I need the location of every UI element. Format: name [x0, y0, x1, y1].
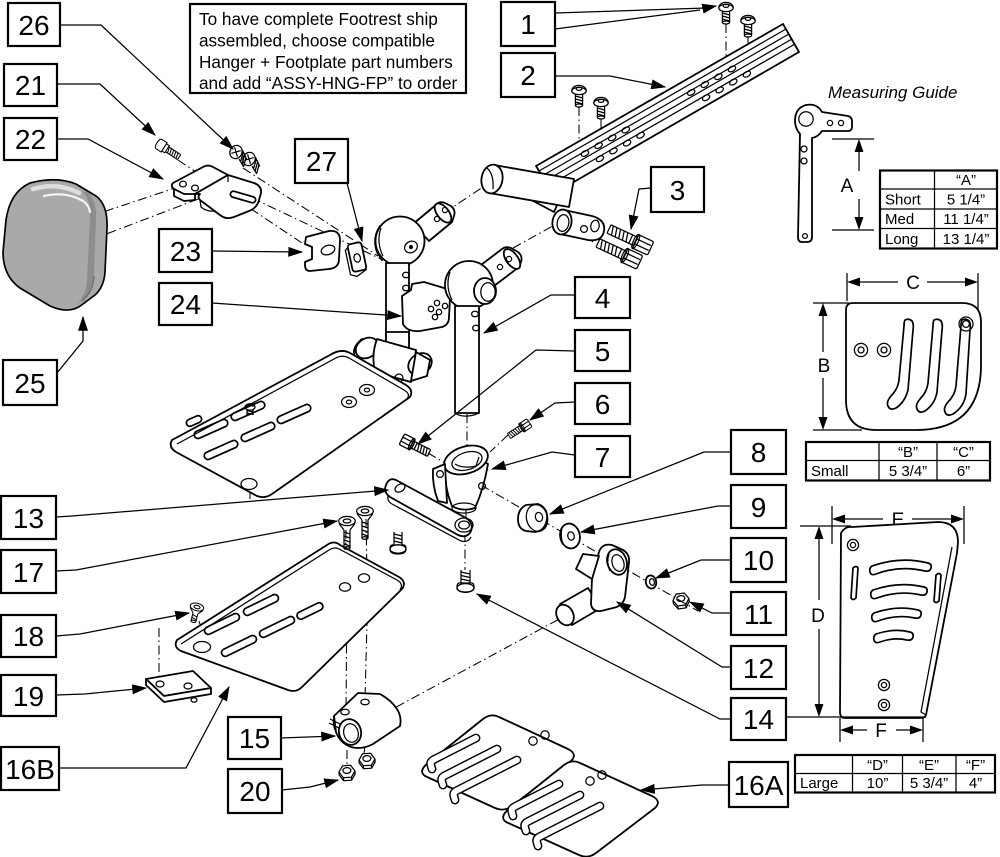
svg-text:9: 9	[751, 492, 767, 523]
svg-text:4”: 4”	[969, 775, 982, 792]
svg-text:“C”: “C”	[953, 444, 974, 461]
svg-text:14: 14	[743, 704, 774, 735]
svg-text:Hanger + Footplate part number: Hanger + Footplate part numbers	[199, 52, 453, 72]
svg-text:15: 15	[239, 723, 270, 754]
svg-text:13: 13	[13, 503, 44, 534]
svg-text:25: 25	[14, 368, 45, 399]
svg-text:“B”: “B”	[898, 444, 918, 461]
svg-text:B: B	[818, 356, 831, 377]
svg-text:1: 1	[520, 9, 536, 40]
svg-text:16A: 16A	[734, 770, 784, 801]
svg-text:5 1/4”: 5 1/4”	[947, 192, 985, 209]
svg-text:“A”: “A”	[956, 172, 976, 189]
svg-text:17: 17	[13, 557, 44, 588]
svg-text:21: 21	[15, 70, 46, 101]
svg-text:C: C	[906, 273, 920, 294]
svg-text:8: 8	[751, 437, 767, 468]
svg-text:Med: Med	[885, 211, 914, 228]
svg-text:A: A	[841, 176, 854, 197]
svg-text:19: 19	[13, 681, 44, 712]
svg-text:4: 4	[595, 283, 611, 314]
svg-text:26: 26	[18, 10, 49, 41]
svg-text:18: 18	[13, 621, 44, 652]
svg-text:“E”: “E”	[919, 757, 939, 774]
svg-text:assembled, choose compatible: assembled, choose compatible	[199, 31, 435, 51]
svg-text:Long: Long	[885, 231, 918, 248]
svg-text:and add “ASSY-HNG-FP” to order: and add “ASSY-HNG-FP” to order	[199, 73, 458, 93]
svg-text:24: 24	[170, 289, 201, 320]
svg-text:11: 11	[744, 599, 773, 630]
svg-text:5 3/4”: 5 3/4”	[889, 463, 927, 480]
svg-text:6: 6	[595, 389, 611, 420]
svg-text:7: 7	[595, 442, 611, 473]
svg-text:23: 23	[170, 236, 201, 267]
svg-text:Short: Short	[885, 192, 922, 209]
svg-text:Measuring Guide: Measuring Guide	[828, 83, 957, 102]
svg-text:11 1/4”: 11 1/4”	[943, 211, 989, 228]
svg-text:F: F	[875, 721, 887, 742]
svg-text:16B: 16B	[5, 754, 55, 785]
svg-text:10: 10	[743, 545, 774, 576]
svg-text:13 1/4”: 13 1/4”	[943, 231, 990, 248]
svg-text:20: 20	[239, 776, 270, 807]
svg-text:To have complete Footrest ship: To have complete Footrest ship	[199, 9, 438, 29]
svg-text:3: 3	[670, 175, 686, 206]
svg-text:2: 2	[520, 60, 536, 91]
svg-text:6”: 6”	[957, 463, 970, 480]
svg-text:12: 12	[743, 653, 774, 684]
svg-text:Large: Large	[800, 775, 838, 792]
svg-text:“F”: “F”	[966, 757, 985, 774]
svg-text:D: D	[811, 606, 825, 627]
svg-text:Small: Small	[811, 463, 849, 480]
svg-text:5: 5	[595, 336, 611, 367]
svg-text:“D”: “D”	[867, 757, 888, 774]
svg-text:27: 27	[306, 146, 337, 177]
svg-text:10”: 10”	[867, 775, 889, 792]
svg-text:22: 22	[15, 124, 46, 155]
svg-text:5 3/4”: 5 3/4”	[910, 775, 948, 792]
